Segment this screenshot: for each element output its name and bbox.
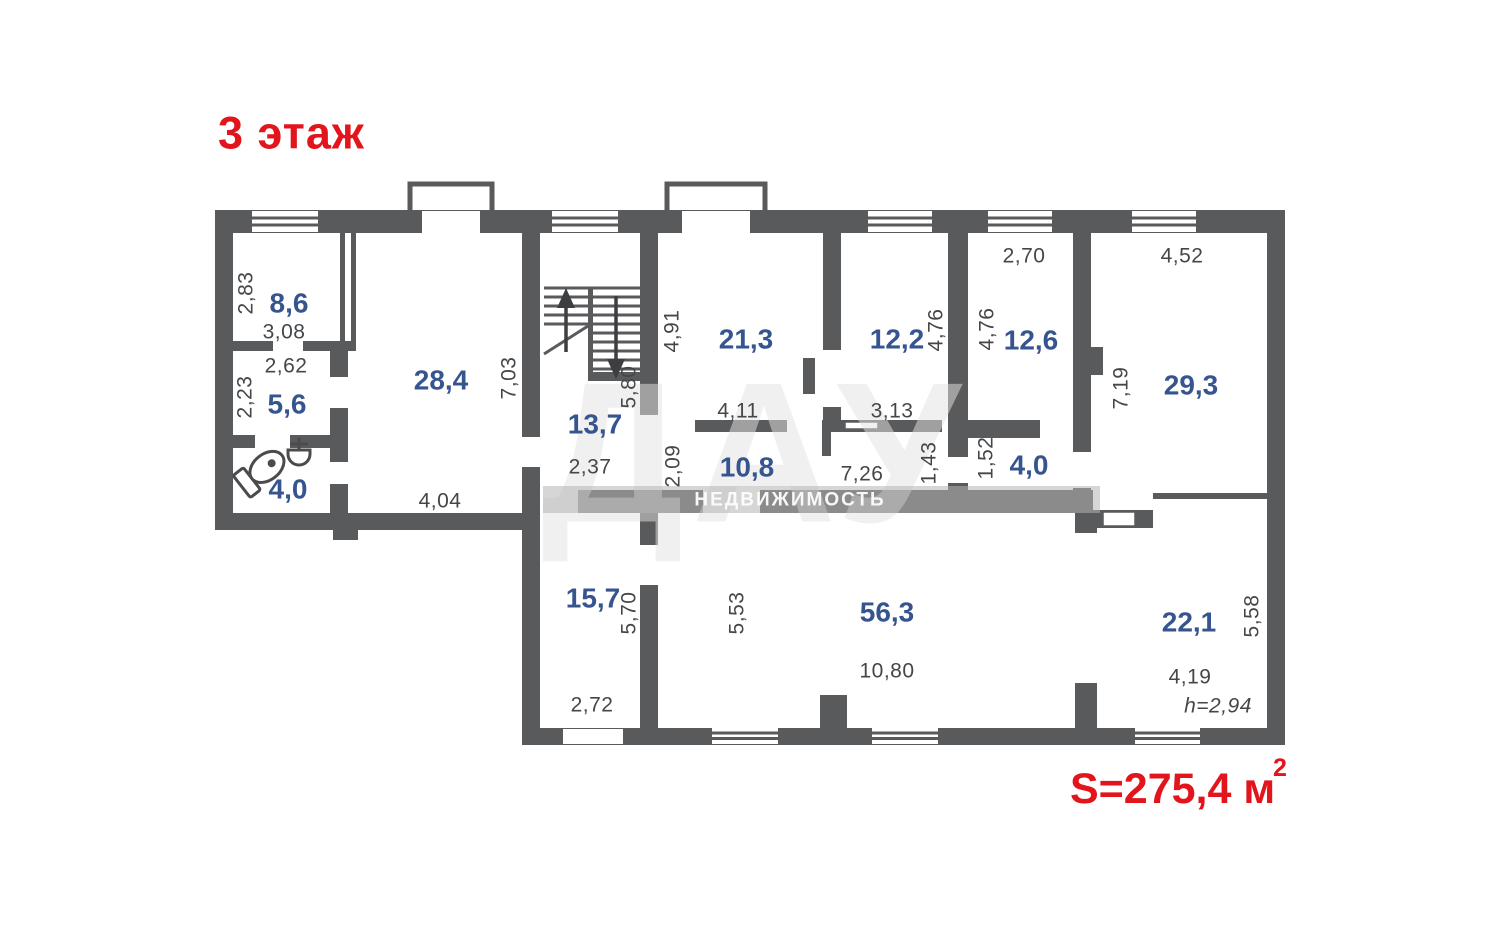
window — [868, 211, 932, 232]
dimension-label: 2,72 — [571, 694, 614, 717]
bay-window — [410, 184, 492, 213]
dimension-label: 2,37 — [569, 456, 612, 479]
dimension-label: 5,53 — [726, 592, 749, 635]
room-area-label: 4,0 — [269, 474, 308, 505]
window — [552, 211, 618, 232]
room-area-label: 21,3 — [719, 324, 774, 355]
wall-segment — [823, 233, 841, 350]
window — [988, 211, 1052, 232]
dimension-label: 3,08 — [263, 321, 306, 344]
room-area-label: 12,6 — [1004, 325, 1059, 356]
room-area-label: 28,4 — [414, 365, 469, 396]
wall-segment — [303, 341, 356, 351]
wall-segment — [215, 513, 540, 530]
dimension-label: 5,58 — [1241, 595, 1264, 638]
wall-segment — [1073, 233, 1091, 452]
total-area-superscript: 2 — [1273, 754, 1287, 782]
dimension-label: 7,03 — [498, 357, 521, 400]
wall-segment — [330, 484, 348, 513]
wall-segment — [215, 210, 233, 530]
wall-segment — [522, 233, 540, 437]
window — [1135, 727, 1200, 744]
room-area-label: 15,7 — [566, 583, 621, 614]
wall-segment — [330, 351, 348, 377]
room-area-label: 12,2 — [870, 324, 925, 355]
room-area-label: 29,3 — [1164, 370, 1219, 401]
wall-segment — [1091, 347, 1103, 375]
dimension-label: 4,52 — [1161, 245, 1204, 268]
dimension-label: 2,23 — [234, 376, 257, 419]
dimension-label: 1,52 — [975, 437, 998, 480]
watermark-band-label: НЕДВИЖИМОСТЬ — [694, 490, 885, 511]
wall-segment — [820, 695, 847, 728]
wall-segment — [340, 233, 345, 343]
window — [252, 211, 318, 232]
dimension-label: 10,80 — [859, 660, 914, 683]
room-area-label: 10,8 — [720, 452, 775, 483]
room-area-label: 5,6 — [268, 389, 307, 420]
dimension-label: 7,26 — [841, 463, 884, 486]
room-area-label: 13,7 — [568, 409, 623, 440]
bay-window — [667, 184, 765, 213]
wall-segment — [966, 420, 1040, 438]
window-opening — [563, 729, 623, 744]
floor-title: 3 этаж — [218, 108, 365, 159]
room-area-label: 4,0 — [1010, 450, 1049, 481]
door-opening — [1103, 512, 1135, 526]
room-area-label: 8,6 — [270, 288, 309, 319]
dimension-label: 5,70 — [618, 592, 641, 635]
window-opening — [422, 211, 480, 233]
floor-plan: ДАУ ДАУ НЕДВИЖИМОСТЬ 8,6 5,6 4,0 28,4 13… — [0, 0, 1500, 926]
dimension-label: 2,83 — [235, 272, 258, 315]
dimension-label: 2,62 — [265, 355, 308, 378]
window-opening — [682, 211, 750, 233]
wall-segment — [333, 513, 358, 540]
wall-segment — [1267, 210, 1285, 745]
room-area-label: 56,3 — [860, 597, 915, 628]
wall-segment — [233, 435, 255, 448]
room-area-label: 22,1 — [1162, 607, 1217, 638]
wall-segment — [1075, 683, 1097, 728]
wall-segment — [1075, 513, 1097, 533]
dimension-label: 4,11 — [717, 400, 758, 423]
total-area-label: S=275,4 м — [1070, 765, 1275, 813]
wall-segment — [351, 233, 356, 343]
dimension-label: 4,19 — [1169, 666, 1212, 689]
window — [1132, 211, 1196, 232]
dimension-label: 3,13 — [871, 400, 914, 423]
dimension-label: 4,04 — [419, 490, 462, 513]
dimension-label: 5,80 — [618, 366, 641, 409]
wall-segment — [640, 585, 658, 728]
window — [872, 727, 938, 744]
dimension-label: 2,09 — [662, 445, 685, 488]
window — [712, 727, 778, 744]
dimension-label: 4,76 — [976, 308, 999, 351]
dimension-label: 1,43 — [918, 442, 941, 485]
dimension-label: 4,91 — [661, 310, 684, 353]
wall-segment — [1153, 493, 1267, 499]
dimension-label: 2,70 — [1003, 245, 1046, 268]
dimension-label: 4,76 — [925, 309, 948, 352]
dimension-label: 7,19 — [1110, 367, 1133, 410]
floor-plan-svg: ДАУ ДАУ НЕДВИЖИМОСТЬ 8,6 5,6 4,0 28,4 13… — [0, 0, 1500, 926]
ceiling-height-label: h=2,94 — [1184, 695, 1252, 718]
wall-segment — [522, 467, 540, 745]
